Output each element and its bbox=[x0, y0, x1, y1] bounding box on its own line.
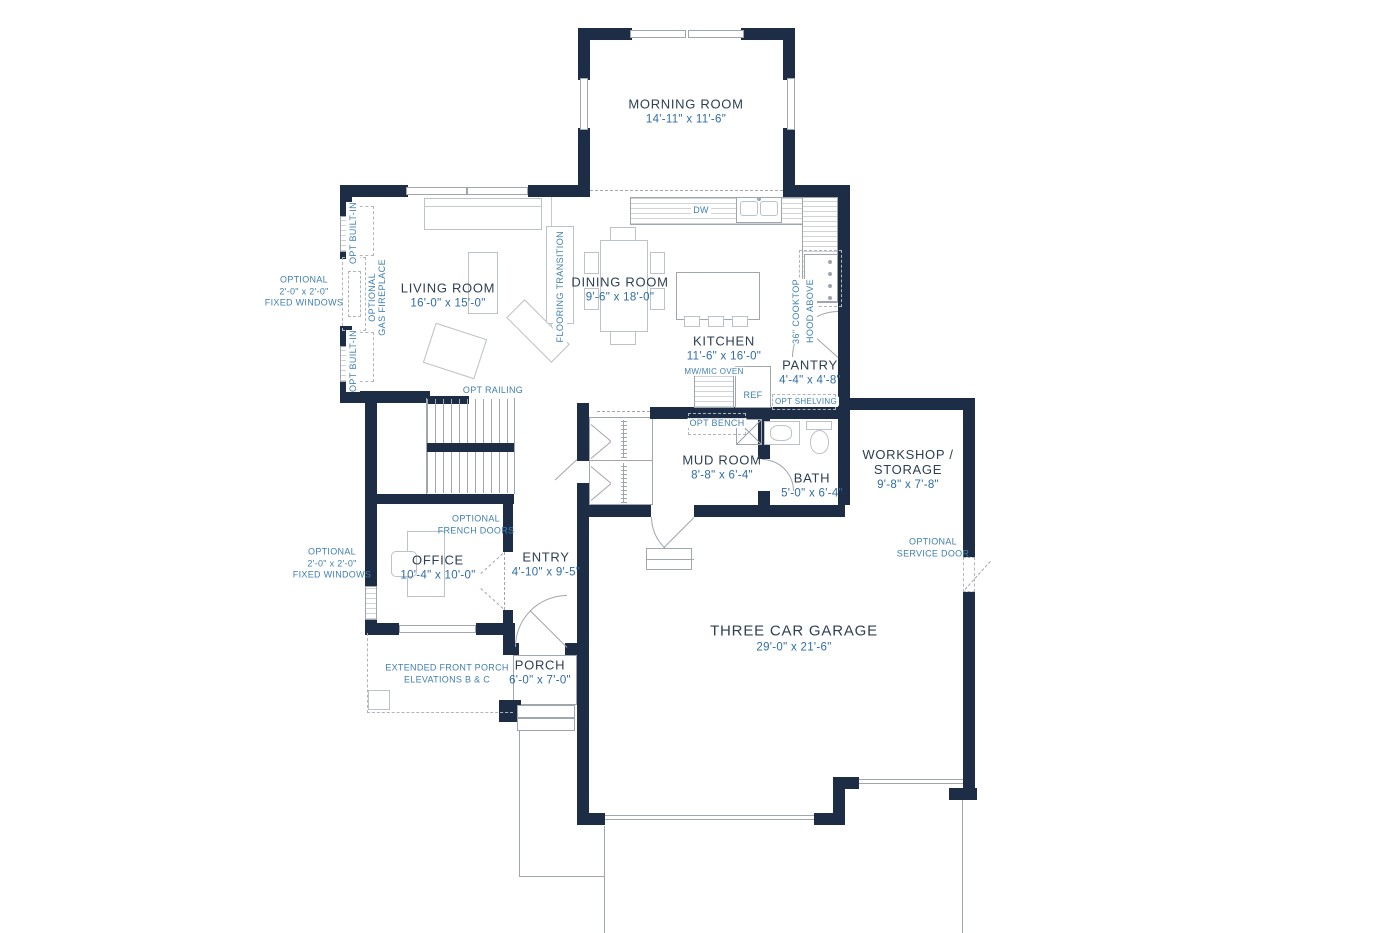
room-label-dining: DINING ROOM 9'-6" x 18'-0" bbox=[571, 275, 668, 304]
room-label-living: LIVING ROOM 16'-0" x 15'-0" bbox=[401, 281, 495, 310]
optional-fixed-window bbox=[365, 586, 377, 620]
annotation-text: 2'-0" x 2'-0" bbox=[293, 558, 371, 570]
stair-stringer bbox=[514, 398, 515, 494]
room-name: KITCHEN bbox=[687, 334, 761, 349]
toilet-tank bbox=[806, 421, 832, 430]
wall-segment bbox=[838, 197, 850, 505]
annotation-text: OPT SHELVING bbox=[773, 397, 839, 406]
window bbox=[630, 30, 686, 38]
garage-door bbox=[859, 779, 963, 784]
annotation-text: FLOORING TRANSITION bbox=[553, 231, 567, 342]
wall-segment bbox=[365, 403, 377, 504]
room-dims: 5'-0" x 6'-4" bbox=[781, 488, 843, 500]
annotation-text: ELEVATIONS B & C bbox=[385, 674, 508, 686]
room-name: THREE CAR GARAGE bbox=[710, 623, 878, 640]
french-doors-label: OPTIONAL FRENCH DOORS bbox=[438, 513, 515, 536]
annotation-text: 36" COOKTOP bbox=[789, 279, 803, 344]
annotation-text: OPT BUILT-IN bbox=[346, 330, 360, 392]
opt-bench-label: OPT BENCH bbox=[687, 418, 746, 430]
wall-segment bbox=[963, 410, 975, 557]
room-dims: 14'-11" x 11'-6" bbox=[628, 114, 743, 126]
dining-chair bbox=[610, 227, 636, 241]
optional-gas-fireplace-label: OPTIONAL GAS FIREPLACE bbox=[367, 248, 387, 346]
annotation-text: DW bbox=[691, 205, 711, 215]
annotation-text: FIXED WINDOWS bbox=[265, 298, 343, 310]
porch-steps bbox=[517, 718, 575, 731]
room-name: ENTRY bbox=[512, 550, 581, 565]
window bbox=[688, 30, 744, 38]
extended-porch-pier bbox=[368, 690, 390, 710]
room-label-mud: MUD ROOM 8'-8" x 6'-4" bbox=[682, 453, 761, 482]
wall-segment bbox=[589, 505, 651, 517]
closet-rod bbox=[621, 420, 627, 458]
vanity-basin bbox=[770, 425, 792, 441]
optional-french-door bbox=[480, 553, 503, 574]
flooring-transition-label: FLOORING TRANSITION bbox=[553, 236, 567, 338]
optional-service-door-opening bbox=[963, 557, 975, 592]
annotation-text: EXTENDED FRONT PORCH bbox=[385, 662, 508, 674]
wall-segment bbox=[577, 813, 605, 825]
room-label-garage: THREE CAR GARAGE 29'-0" x 21'-6" bbox=[710, 623, 878, 654]
room-label-kitchen: KITCHEN 11'-6" x 16'-0" bbox=[687, 334, 761, 363]
sofa bbox=[424, 198, 542, 230]
wall-segment bbox=[783, 40, 795, 80]
annotation-text: 2'-0" x 2'-0" bbox=[265, 286, 343, 298]
ceiling-break-line bbox=[590, 190, 783, 191]
annotation-text: REF bbox=[742, 390, 765, 400]
cooktop-knob bbox=[828, 272, 832, 276]
room-dims: 11'-6" x 16'-0" bbox=[687, 351, 761, 363]
wall-segment bbox=[694, 505, 845, 517]
hall-door-leaf bbox=[555, 459, 578, 480]
wall-segment bbox=[577, 403, 589, 461]
room-name: MUD ROOM bbox=[682, 453, 761, 468]
dining-chair bbox=[610, 331, 636, 345]
stairs bbox=[427, 452, 514, 493]
annotation-text: OPTIONAL bbox=[293, 546, 371, 558]
stairs bbox=[427, 399, 514, 443]
cooktop-knob bbox=[828, 296, 832, 300]
annotation-text: MW/MIC OVEN bbox=[682, 367, 745, 376]
annotation-text: FIXED WINDOWS bbox=[293, 570, 371, 582]
annotation-text: SERVICE DOOR bbox=[897, 548, 969, 560]
fixed-windows-label: OPTIONAL 2'-0" x 2'-0" FIXED WINDOWS bbox=[293, 546, 371, 581]
room-label-office: OFFICE 10'-4" x 10'-0" bbox=[400, 553, 475, 582]
mw-oven-label: MW/MIC OVEN bbox=[682, 367, 745, 377]
faucet bbox=[757, 197, 761, 201]
annotation-text: OPT RAILING bbox=[461, 385, 525, 395]
sink-basin bbox=[740, 201, 758, 216]
opening-line bbox=[597, 411, 650, 412]
wall-segment bbox=[963, 592, 975, 788]
cooktop-knob bbox=[828, 284, 832, 288]
annotation-text: FRENCH DOORS bbox=[438, 525, 515, 537]
window bbox=[467, 187, 528, 195]
room-name: LIVING ROOM bbox=[401, 281, 495, 296]
opt-shelving-label: OPT SHELVING bbox=[773, 397, 839, 407]
garage-step-line bbox=[646, 559, 692, 560]
wall-segment bbox=[577, 483, 589, 507]
dining-chair bbox=[584, 252, 599, 274]
room-name: MORNING ROOM bbox=[628, 97, 743, 112]
annotation-text: OPTIONAL bbox=[367, 273, 377, 322]
bar-stool bbox=[708, 316, 724, 327]
walkway-line bbox=[519, 730, 520, 877]
bar-stool bbox=[684, 316, 700, 327]
room-dims: 10'-4" x 10'-0" bbox=[400, 570, 475, 582]
optional-french-door bbox=[480, 588, 503, 609]
window bbox=[399, 625, 476, 633]
dining-chair bbox=[650, 252, 665, 274]
wall-segment bbox=[365, 623, 399, 635]
driveway-line bbox=[962, 800, 963, 933]
cooktop-hood-label: 36" COOKTOP HOOD ABOVE bbox=[789, 250, 817, 372]
window bbox=[580, 78, 588, 130]
room-name: WORKSHOP / bbox=[862, 447, 953, 462]
garage-door bbox=[605, 815, 816, 820]
sink-basin bbox=[760, 201, 778, 216]
room-dims: 9'-6" x 18'-0" bbox=[571, 292, 668, 304]
annotation-text: OPTIONAL bbox=[265, 274, 343, 286]
room-name: PORCH bbox=[509, 658, 571, 673]
extended-porch-label: EXTENDED FRONT PORCH ELEVATIONS B & C bbox=[385, 662, 508, 685]
wall-segment bbox=[838, 398, 975, 410]
floor-plan: MORNING ROOM 14'-11" x 11'-6" LIVING ROO… bbox=[0, 0, 1400, 933]
wall-segment bbox=[528, 185, 578, 197]
sofa-back-line bbox=[424, 206, 542, 207]
room-label-morning: MORNING ROOM 14'-11" x 11'-6" bbox=[628, 97, 743, 126]
room-label-bath: BATH 5'-0" x 6'-4" bbox=[781, 471, 843, 500]
room-dims: 4'-4" x 4'-8" bbox=[779, 375, 841, 387]
room-label-entry: ENTRY 4'-10" x 9'-5" bbox=[512, 550, 581, 579]
cooktop-knob bbox=[828, 260, 832, 264]
room-dims: 8'-8" x 6'-4" bbox=[682, 470, 761, 482]
wall-segment bbox=[578, 40, 590, 80]
room-name: BATH bbox=[781, 471, 843, 486]
room-label-porch: PORCH 6'-0" x 7'-0" bbox=[509, 658, 571, 687]
extended-porch-outline bbox=[367, 712, 513, 713]
ref-label: REF bbox=[742, 390, 765, 402]
kitchen-island bbox=[676, 272, 760, 320]
room-label-workshop: WORKSHOP / STORAGE 9'-8" x 7'-8" bbox=[862, 447, 953, 491]
room-dims: 29'-0" x 21'-6" bbox=[710, 642, 878, 654]
room-name: STORAGE bbox=[862, 462, 953, 477]
window bbox=[787, 78, 795, 130]
annotation-text: GAS FIREPLACE bbox=[377, 259, 387, 336]
opt-railing-label: OPT RAILING bbox=[461, 385, 525, 397]
wall-segment bbox=[783, 185, 850, 197]
closet-rod bbox=[621, 463, 627, 503]
closet-divider bbox=[589, 460, 653, 461]
annotation-text: HOOD ABOVE bbox=[803, 279, 817, 343]
opt-built-in-label: OPT BUILT-IN bbox=[346, 204, 360, 262]
fixed-windows-label: OPTIONAL 2'-0" x 2'-0" FIXED WINDOWS bbox=[265, 274, 343, 309]
wall-segment bbox=[833, 777, 859, 789]
wall-segment bbox=[949, 788, 977, 800]
opt-built-in-label: OPT BUILT-IN bbox=[346, 332, 360, 390]
wall-segment bbox=[741, 28, 795, 40]
room-dims: 16'-0" x 15'-0" bbox=[401, 298, 495, 310]
wall-segment bbox=[340, 185, 408, 197]
wall-segment bbox=[578, 28, 632, 40]
walkway-line bbox=[519, 876, 605, 877]
annotation-text: OPTIONAL bbox=[438, 513, 515, 525]
accent-chair bbox=[423, 323, 487, 380]
annotation-text: OPT BUILT-IN bbox=[346, 202, 360, 264]
annotation-text: OPTIONAL bbox=[897, 536, 969, 548]
wall-segment bbox=[340, 391, 430, 403]
annotation-text: OPT BENCH bbox=[687, 418, 746, 428]
room-name: DINING ROOM bbox=[571, 275, 668, 290]
optional-french-door bbox=[504, 552, 506, 610]
stair-landing-wall bbox=[427, 443, 514, 452]
dw-label: DW bbox=[691, 205, 711, 217]
window bbox=[406, 187, 467, 195]
toilet-bowl bbox=[810, 430, 829, 454]
wall-segment bbox=[578, 128, 590, 197]
room-name: OFFICE bbox=[400, 553, 475, 568]
room-dims: 6'-0" x 7'-0" bbox=[509, 675, 571, 687]
optional-gas-fireplace-inner bbox=[348, 271, 361, 317]
bar-stool bbox=[732, 316, 748, 327]
room-dims: 4'-10" x 9'-5" bbox=[512, 567, 581, 579]
service-door-label: OPTIONAL SERVICE DOOR bbox=[897, 536, 969, 559]
room-dims: 9'-8" x 7'-8" bbox=[862, 479, 953, 491]
porch-steps bbox=[517, 705, 575, 718]
driveway-line bbox=[604, 826, 605, 933]
wall-segment bbox=[372, 494, 514, 504]
